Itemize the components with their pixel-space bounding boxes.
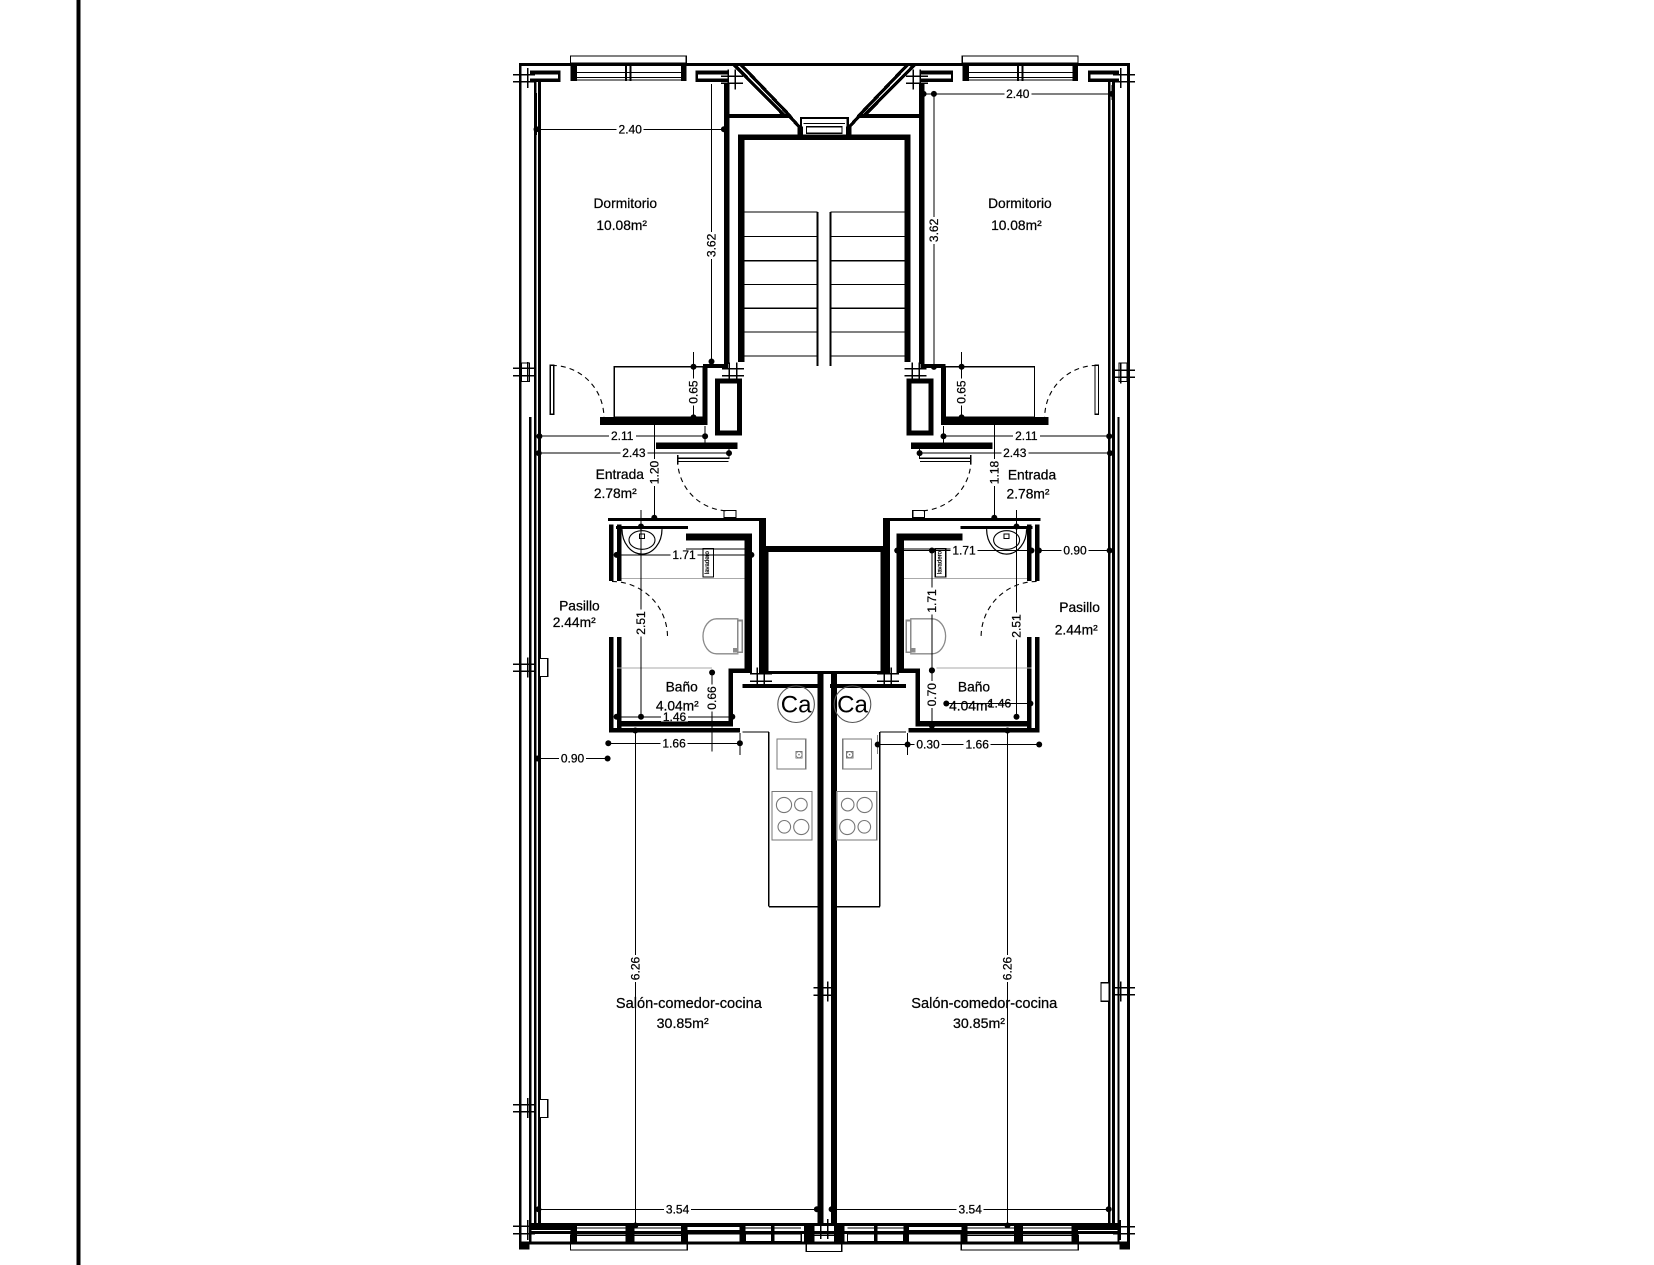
svg-text:6.26: 6.26 (1001, 956, 1015, 980)
svg-text:2.11: 2.11 (1015, 429, 1038, 443)
svg-text:3.54: 3.54 (666, 1202, 690, 1216)
svg-text:1.71: 1.71 (925, 589, 939, 613)
svg-text:2.43: 2.43 (1003, 446, 1027, 460)
svg-text:3.54: 3.54 (959, 1202, 983, 1216)
svg-text:Pasillo: Pasillo (1059, 600, 1100, 615)
svg-text:Ca: Ca (781, 692, 812, 719)
svg-text:Salón-comedor-cocina: Salón-comedor-cocina (616, 996, 763, 1012)
svg-text:4.04m²: 4.04m² (949, 699, 992, 714)
svg-text:1.18: 1.18 (987, 460, 1001, 484)
svg-text:30.85m²: 30.85m² (953, 1016, 1005, 1032)
svg-text:2.44m²: 2.44m² (1055, 622, 1098, 637)
svg-text:1.66: 1.66 (966, 738, 990, 752)
svg-text:0.90: 0.90 (561, 752, 585, 766)
svg-text:Pasillo: Pasillo (559, 599, 600, 614)
svg-text:2.43: 2.43 (622, 446, 646, 460)
svg-text:Entrada: Entrada (1008, 468, 1057, 483)
svg-text:10.08m²: 10.08m² (991, 218, 1042, 233)
svg-text:0.66: 0.66 (705, 686, 719, 710)
svg-text:6.26: 6.26 (628, 956, 642, 980)
svg-text:10.08m²: 10.08m² (596, 218, 647, 233)
svg-text:0.70: 0.70 (925, 683, 939, 707)
svg-text:Dormitorio: Dormitorio (988, 196, 1052, 211)
svg-text:lavadero: lavadero (705, 550, 711, 574)
svg-text:1.20: 1.20 (647, 460, 661, 484)
svg-text:Salón-comedor-cocina: Salón-comedor-cocina (911, 996, 1058, 1012)
svg-text:0.30: 0.30 (916, 738, 940, 752)
svg-text:3.62: 3.62 (705, 233, 719, 257)
svg-text:1.66: 1.66 (662, 736, 686, 750)
svg-text:1.71: 1.71 (952, 544, 976, 558)
svg-text:0.65: 0.65 (955, 380, 969, 404)
svg-text:Entrada: Entrada (596, 467, 645, 482)
svg-text:2.40: 2.40 (1006, 87, 1030, 101)
svg-text:2.78m²: 2.78m² (594, 486, 637, 501)
svg-text:0.65: 0.65 (687, 380, 701, 404)
svg-text:2.78m²: 2.78m² (1007, 487, 1050, 502)
svg-text:2.40: 2.40 (619, 122, 643, 136)
svg-text:lavadero: lavadero (938, 550, 944, 574)
svg-text:2.51: 2.51 (634, 611, 648, 635)
svg-text:Ca: Ca (837, 692, 868, 719)
svg-text:4.04m²: 4.04m² (656, 699, 699, 714)
svg-text:Baño: Baño (958, 680, 991, 695)
svg-text:Baño: Baño (666, 680, 699, 695)
svg-text:2.44m²: 2.44m² (553, 615, 596, 630)
svg-text:Dormitorio: Dormitorio (593, 196, 657, 211)
svg-text:1.71: 1.71 (672, 548, 696, 562)
svg-text:2.51: 2.51 (1010, 614, 1024, 638)
svg-text:2.11: 2.11 (611, 429, 634, 443)
svg-text:30.85m²: 30.85m² (657, 1016, 709, 1032)
svg-text:3.62: 3.62 (927, 218, 941, 242)
svg-text:0.90: 0.90 (1063, 544, 1087, 558)
